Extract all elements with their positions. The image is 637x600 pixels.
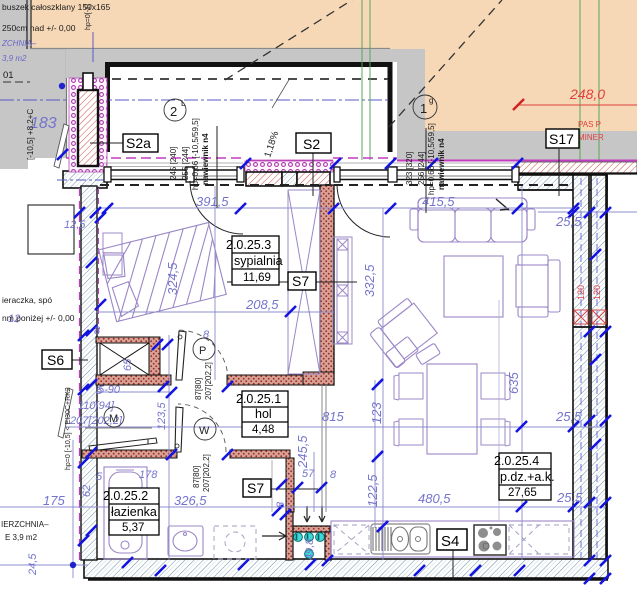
svg-text:8: 8	[94, 325, 101, 337]
svg-text:IERZCHNIA–: IERZCHNIA–	[1, 520, 49, 529]
svg-text:hp=0 [-10,5] < EI30C+RK2: hp=0 [-10,5] < EI30C+RK2	[65, 387, 72, 470]
svg-text:hp=0,66 [-10,5/59,5]: hp=0,66 [-10,5/59,5]	[191, 118, 200, 190]
svg-text:2.0.25.2: 2.0.25.2	[103, 489, 148, 503]
svg-text:8: 8	[275, 501, 287, 508]
svg-text:332,5: 332,5	[362, 264, 377, 297]
svg-text:25,5: 25,5	[555, 409, 582, 424]
svg-text:391,5: 391,5	[196, 194, 229, 209]
svg-text:ieraczka, spó: ieraczka, spó	[2, 295, 52, 305]
svg-text:24,5: 24,5	[27, 553, 39, 576]
svg-text:hp=0[-1]: hp=0[-1]	[85, 4, 92, 30]
svg-text:2.0.25.1: 2.0.25.1	[236, 392, 281, 406]
svg-text:207[202,2]: 207[202,2]	[204, 362, 213, 400]
svg-text:49,8: 49,8	[304, 538, 316, 560]
svg-text:110[94]: 110[94]	[78, 400, 115, 412]
svg-text:2.0.25.3: 2.0.25.3	[226, 238, 271, 252]
svg-text:178: 178	[139, 469, 158, 481]
svg-text:245,5: 245,5	[295, 435, 310, 469]
svg-text:hol: hol	[255, 407, 272, 421]
svg-text:87[80]: 87[80]	[194, 378, 203, 400]
svg-text:248,0: 248,0	[569, 86, 605, 102]
svg-text:4,48: 4,48	[252, 424, 274, 436]
svg-text:323 [320]: 323 [320]	[405, 152, 414, 185]
svg-text:256 [244]: 256 [244]	[417, 152, 426, 185]
svg-text:S2: S2	[303, 136, 320, 152]
svg-text:buszek całoszklany 150x165: buszek całoszklany 150x165	[2, 2, 110, 12]
svg-text:27,65: 27,65	[508, 487, 537, 499]
svg-text:123,5: 123,5	[156, 402, 168, 430]
svg-text:5: 5	[96, 471, 103, 483]
svg-text:MINER: MINER	[578, 133, 604, 142]
svg-text:[-10,5] +8,2+C: [-10,5] +8,2+C	[26, 109, 35, 160]
svg-text:208,5: 208,5	[245, 297, 279, 312]
svg-text:ZCHNIA–: ZCHNIA–	[1, 39, 37, 48]
svg-text:5,37: 5,37	[122, 522, 144, 534]
svg-text:250cm nad +/- 0,00: 250cm nad +/- 0,00	[2, 23, 76, 33]
svg-text:W: W	[199, 425, 210, 437]
svg-text:635: 635	[506, 372, 521, 394]
svg-text:480,5: 480,5	[418, 491, 451, 506]
svg-text:87[80]: 87[80]	[192, 466, 201, 488]
svg-text:nawiewnik n4: nawiewnik n4	[437, 138, 446, 190]
svg-text:122,5: 122,5	[365, 474, 380, 507]
svg-text:łazienka: łazienka	[111, 505, 157, 519]
svg-text:25,5: 25,5	[555, 214, 582, 229]
svg-text:hp=0,66 [-10,5/59,5]: hp=0,66 [-10,5/59,5]	[427, 123, 436, 195]
svg-text:S6: S6	[47, 352, 64, 368]
svg-text:S17: S17	[549, 131, 574, 147]
svg-text:S4: S4	[441, 533, 459, 550]
svg-text:57: 57	[302, 468, 315, 480]
svg-text:S7: S7	[247, 480, 264, 496]
svg-text:123: 123	[369, 402, 384, 424]
svg-text:256 [244]: 256 [244]	[181, 147, 190, 180]
svg-text:S7: S7	[292, 273, 309, 289]
svg-text:3,9 m2: 3,9 m2	[2, 54, 27, 63]
svg-text:12,5: 12,5	[64, 219, 86, 231]
svg-text:M: M	[109, 413, 118, 425]
svg-text:324,5: 324,5	[165, 262, 180, 295]
svg-text:120: 120	[576, 285, 586, 300]
svg-text:120: 120	[592, 285, 602, 300]
svg-text:01: 01	[3, 70, 14, 81]
svg-text:65: 65	[122, 358, 134, 371]
svg-text:PAS P: PAS P	[578, 120, 601, 129]
svg-text:sypialnia: sypialnia	[234, 254, 283, 268]
svg-text:5: 5	[96, 385, 103, 397]
svg-text:175: 175	[43, 493, 65, 508]
svg-text:E 3,9 m2: E 3,9 m2	[5, 533, 38, 542]
svg-text:P: P	[199, 345, 206, 357]
svg-text:62: 62	[81, 485, 93, 497]
svg-text:2: 2	[170, 104, 177, 119]
svg-text:nawiewnik n4: nawiewnik n4	[201, 133, 210, 185]
svg-text:p.dz.+a.k.: p.dz.+a.k.	[500, 470, 555, 484]
svg-text:g: g	[429, 96, 433, 105]
svg-text:326,5: 326,5	[174, 493, 207, 508]
svg-text:8: 8	[330, 469, 337, 481]
svg-text:815: 815	[322, 409, 344, 424]
svg-text:L: L	[181, 99, 186, 108]
svg-text:245 [240]: 245 [240]	[169, 147, 178, 180]
svg-text:1: 1	[420, 101, 427, 116]
svg-text:25,5: 25,5	[556, 490, 583, 505]
svg-text:S2a: S2a	[126, 135, 151, 151]
svg-text:415,5: 415,5	[422, 194, 455, 209]
svg-text:11,69: 11,69	[243, 272, 271, 284]
svg-text:207[202,2]: 207[202,2]	[202, 454, 211, 492]
svg-text:nm poniżej +/- 0,00: nm poniżej +/- 0,00	[2, 313, 75, 323]
svg-text:2.0.25.4: 2.0.25.4	[494, 454, 539, 468]
